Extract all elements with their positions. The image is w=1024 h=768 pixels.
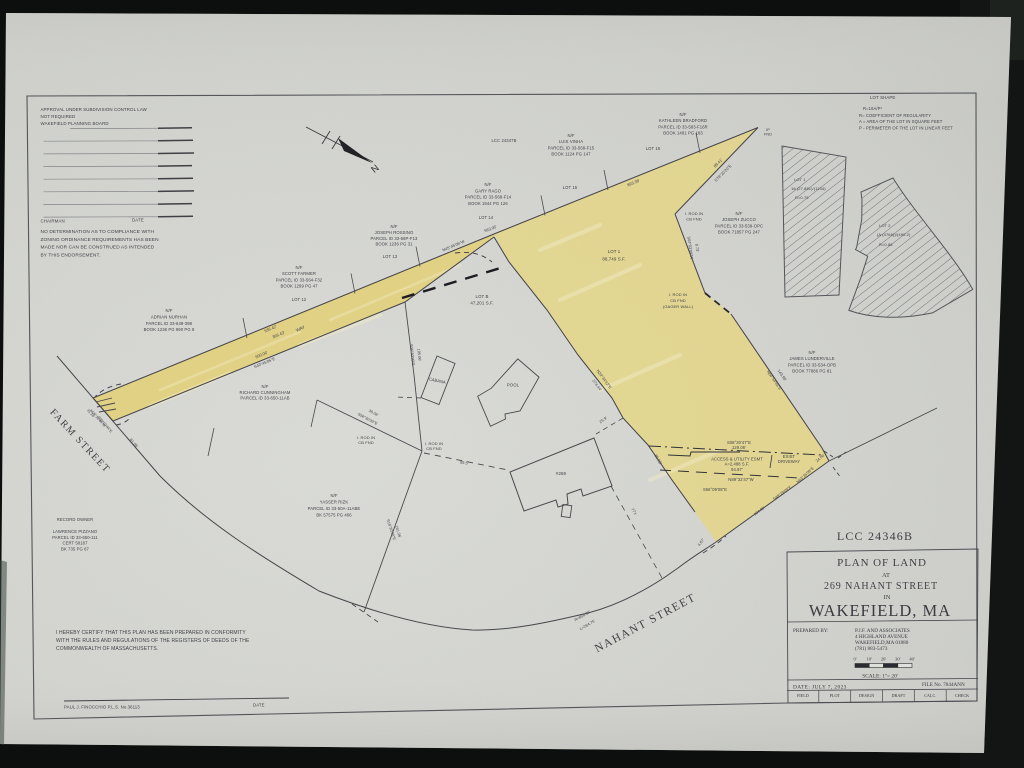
svg-text:BOOK 1124 PG 147: BOOK 1124 PG 147 <box>551 152 591 157</box>
svg-text:47,201 S.F.: 47,201 S.F. <box>470 301 493 306</box>
svg-text:I. ROD IN: I. ROD IN <box>685 211 703 216</box>
svg-text:RECORD OWNER: RECORD OWNER <box>57 517 94 522</box>
svg-text:LOT 16: LOT 16 <box>646 146 661 151</box>
svg-text:CALC.: CALC. <box>924 693 936 698</box>
svg-text:269 NAHANT STREET: 269 NAHANT STREET <box>824 581 938 592</box>
svg-text:YASSER RIZK: YASSER RIZK <box>320 500 349 505</box>
svg-text:20': 20' <box>881 657 887 662</box>
svg-text:PLAN OF LAND: PLAN OF LAND <box>837 557 927 569</box>
svg-text:LOT SHAPE: LOT SHAPE <box>870 95 895 100</box>
svg-text:BK 735 PG 67: BK 735 PG 67 <box>61 546 90 551</box>
svg-text:LCC 24347B: LCC 24347B <box>492 138 517 143</box>
svg-text:N/F: N/F <box>735 211 742 216</box>
svg-text:LOT 15: LOT 15 <box>563 185 578 190</box>
svg-text:DATE: DATE <box>132 218 144 223</box>
svg-text:A = AREA OF THE LOT IN SQUARE: A = AREA OF THE LOT IN SQUARE FEET <box>859 119 943 124</box>
svg-text:R=16A/P²: R=16A/P² <box>863 106 883 111</box>
svg-text:16 (27,851)/(1134): 16 (27,851)/(1134) <box>791 186 826 191</box>
svg-text:PARCEL ID 33-539-OPC: PARCEL ID 33-539-OPC <box>715 223 763 228</box>
svg-text:DESIGN: DESIGN <box>859 693 874 698</box>
svg-text:SCOTT FARMER: SCOTT FARMER <box>282 271 316 276</box>
svg-text:PARCEL ID 33-50A-11ABE: PARCEL ID 33-50A-11ABE <box>308 506 361 511</box>
svg-text:BOOK 1299 PG 47: BOOK 1299 PG 47 <box>280 284 318 289</box>
svg-text:MADE NOR CAN BE CONSTRUED AS I: MADE NOR CAN BE CONSTRUED AS INTENDED <box>41 245 155 251</box>
svg-text:LOT 1: LOT 1 <box>794 177 806 182</box>
svg-text:IP: IP <box>766 128 770 132</box>
svg-text:CB FND: CB FND <box>358 440 374 445</box>
svg-text:PARCEL ID 33-650-111: PARCEL ID 33-650-111 <box>52 535 98 540</box>
svg-text:JAMES LUNDERVILLE: JAMES LUNDERVILLE <box>789 356 834 361</box>
svg-text:PARCEL ID 33-564-F32: PARCEL ID 33-564-F32 <box>276 277 323 282</box>
svg-text:0': 0' <box>853 657 856 662</box>
svg-text:PARCEL ID 33-650-11AB: PARCEL ID 33-650-11AB <box>240 396 289 401</box>
svg-text:IN: IN <box>884 594 891 601</box>
svg-text:N/F: N/F <box>484 182 491 187</box>
svg-text:AT: AT <box>882 572 890 579</box>
svg-text:GARY RAGO: GARY RAGO <box>475 188 502 193</box>
svg-text:(781) 883-5473: (781) 883-5473 <box>855 645 888 652</box>
svg-text:KATHLEEN BRADFORD: KATHLEEN BRADFORD <box>659 118 707 123</box>
svg-text:APPROVAL UNDER SUBDIVISION CON: APPROVAL UNDER SUBDIVISION CONTROL LAW <box>41 107 148 112</box>
svg-text:I HEREBY CERTIFY THAT THIS PLA: I HEREBY CERTIFY THAT THIS PLAN HAS BEEN… <box>56 630 246 636</box>
svg-text:JOSEPH ROSSINO: JOSEPH ROSSINO <box>375 230 414 235</box>
svg-text:CERT 58187: CERT 58187 <box>62 541 88 546</box>
svg-text:LOT B: LOT B <box>475 294 488 299</box>
svg-text:PAUL J. FINOCCHIO P.L.S. No.36: PAUL J. FINOCCHIO P.L.S. No.36113 <box>64 705 140 710</box>
svg-text:N/F: N/F <box>390 224 397 229</box>
svg-text:BOOK 71857 PG 247: BOOK 71857 PG 247 <box>718 230 761 235</box>
svg-text:N/F: N/F <box>261 384 268 389</box>
svg-text:R=0.86: R=0.86 <box>879 242 893 247</box>
svg-text:PREPARED BY:: PREPARED BY: <box>793 628 829 634</box>
svg-text:N/F: N/F <box>808 350 815 355</box>
svg-text:RICHARD CUNNINGHAM: RICHARD CUNNINGHAM <box>240 390 291 395</box>
svg-text:NO DETERMINATION AS TO COMPLIA: NO DETERMINATION AS TO COMPLIANCE WITH <box>41 229 155 235</box>
svg-text:PARCEL ID 33-649-398: PARCEL ID 33-649-398 <box>146 321 193 326</box>
svg-text:LOT 12: LOT 12 <box>292 297 307 302</box>
svg-text:LOT 13: LOT 13 <box>383 254 398 259</box>
svg-text:POOL: POOL <box>507 383 520 388</box>
svg-text:NOT REQUIRED: NOT REQUIRED <box>41 114 76 119</box>
svg-text:CHECK: CHECK <box>955 693 969 698</box>
svg-text:129.06': 129.06' <box>732 445 746 450</box>
svg-text:N89°32'47"W: N89°32'47"W <box>728 477 753 482</box>
svg-text:N/F: N/F <box>330 493 337 498</box>
svg-text:WAKEFIELD, MA: WAKEFIELD, MA <box>809 601 951 620</box>
svg-text:LOT 1: LOT 1 <box>608 249 621 254</box>
svg-text:PARCEL ID 33-534-OPB: PARCEL ID 33-534-OPB <box>788 362 836 367</box>
svg-text:BOOK 1236 PG 990 PG 8: BOOK 1236 PG 990 PG 8 <box>144 327 195 332</box>
svg-text:JOSEPH ZUCCO: JOSEPH ZUCCO <box>722 217 757 222</box>
svg-text:ADRIAN NURHAN: ADRIAN NURHAN <box>151 314 187 319</box>
svg-text:BOOK 1944 PG 126: BOOK 1944 PG 126 <box>468 201 508 206</box>
svg-text:LCC 24346B: LCC 24346B <box>837 529 913 543</box>
svg-text:FIELD: FIELD <box>797 693 809 698</box>
svg-text:DATE: JULY 7, 2023: DATE: JULY 7, 2023 <box>793 685 847 691</box>
svg-text:PARCEL ID 33-568-F14: PARCEL ID 33-568-F14 <box>465 195 512 200</box>
svg-text:BOOK 1236 PG 31: BOOK 1236 PG 31 <box>375 242 413 247</box>
svg-text:40': 40' <box>909 657 915 662</box>
svg-text:FND: FND <box>764 133 772 137</box>
svg-text:30': 30' <box>895 657 901 662</box>
svg-text:ZONING ORDINANCE REQUIREMENTS: ZONING ORDINANCE REQUIREMENTS HAS BEEN <box>41 237 160 243</box>
svg-text:WAKEFIELD PLANNING BOARD: WAKEFIELD PLANNING BOARD <box>41 121 109 126</box>
svg-text:(A (4766))/(490.2): (A (4766))/(490.2) <box>877 232 911 237</box>
svg-text:FILE No. 7844ANN: FILE No. 7844ANN <box>922 682 965 688</box>
svg-text:88,749 S.F.: 88,749 S.F. <box>602 257 625 262</box>
svg-text:CB FND: CB FND <box>670 298 686 303</box>
svg-text:#269: #269 <box>556 471 567 476</box>
svg-text:WITH THE RULES AND REGULATIONS: WITH THE RULES AND REGULATIONS OF THE RE… <box>56 638 250 644</box>
svg-text:94.97': 94.97' <box>731 467 743 472</box>
svg-text:DRAFT: DRAFT <box>892 693 906 698</box>
svg-text:BOOK 77886 PG 81: BOOK 77886 PG 81 <box>792 369 832 374</box>
svg-text:LOT 14: LOT 14 <box>479 215 494 220</box>
svg-text:DATE: DATE <box>253 703 265 708</box>
svg-text:S66°09'08"E: S66°09'08"E <box>703 487 727 492</box>
svg-text:(GAGER WALL): (GAGER WALL) <box>663 304 694 309</box>
svg-text:N/F: N/F <box>567 133 574 138</box>
svg-text:N/F: N/F <box>165 308 172 313</box>
svg-text:COMMONWEALTH OF MASSACHUSETTS.: COMMONWEALTH OF MASSACHUSETTS. <box>56 646 158 652</box>
svg-text:LAWRENCE PIZZANO: LAWRENCE PIZZANO <box>53 529 98 534</box>
svg-text:PARCEL ID 33-56P-F13: PARCEL ID 33-56P-F13 <box>371 236 418 241</box>
svg-text:CB FND: CB FND <box>686 217 702 222</box>
svg-text:10': 10' <box>867 657 873 662</box>
svg-text:N/F: N/F <box>679 112 686 117</box>
svg-text:R=0.79: R=0.79 <box>795 195 809 200</box>
svg-text:BK 57575 PG 466: BK 57575 PG 466 <box>316 513 352 518</box>
svg-text:PARCEL ID 33-568-F15: PARCEL ID 33-568-F15 <box>548 145 595 150</box>
svg-text:N/F: N/F <box>295 265 302 270</box>
svg-text:I. ROD IN: I. ROD IN <box>669 292 687 297</box>
svg-text:CB FND: CB FND <box>426 446 442 451</box>
svg-text:P - PERIMETER OF THE LOT IN LI: P - PERIMETER OF THE LOT IN LINEAR FEET <box>859 125 953 130</box>
svg-text:LUIS VINHA: LUIS VINHA <box>559 139 583 144</box>
svg-text:BY THIS ENDORSEMENT.: BY THIS ENDORSEMENT. <box>41 252 101 258</box>
svg-text:BOOK 1481 PG 183: BOOK 1481 PG 183 <box>663 131 703 136</box>
svg-text:DRIVEWAY: DRIVEWAY <box>778 459 800 464</box>
svg-text:CHAIRMAN: CHAIRMAN <box>41 219 65 224</box>
svg-text:PLOT: PLOT <box>830 693 841 698</box>
svg-text:PARCEL ID 33-583-F16R: PARCEL ID 33-583-F16R <box>658 124 708 129</box>
svg-text:LOT 2: LOT 2 <box>879 223 891 228</box>
svg-text:SCALE: 1"= 20': SCALE: 1"= 20' <box>862 674 898 680</box>
svg-text:R= COEFFICIENT OF REGULARITY: R= COEFFICIENT OF REGULARITY <box>859 113 931 118</box>
